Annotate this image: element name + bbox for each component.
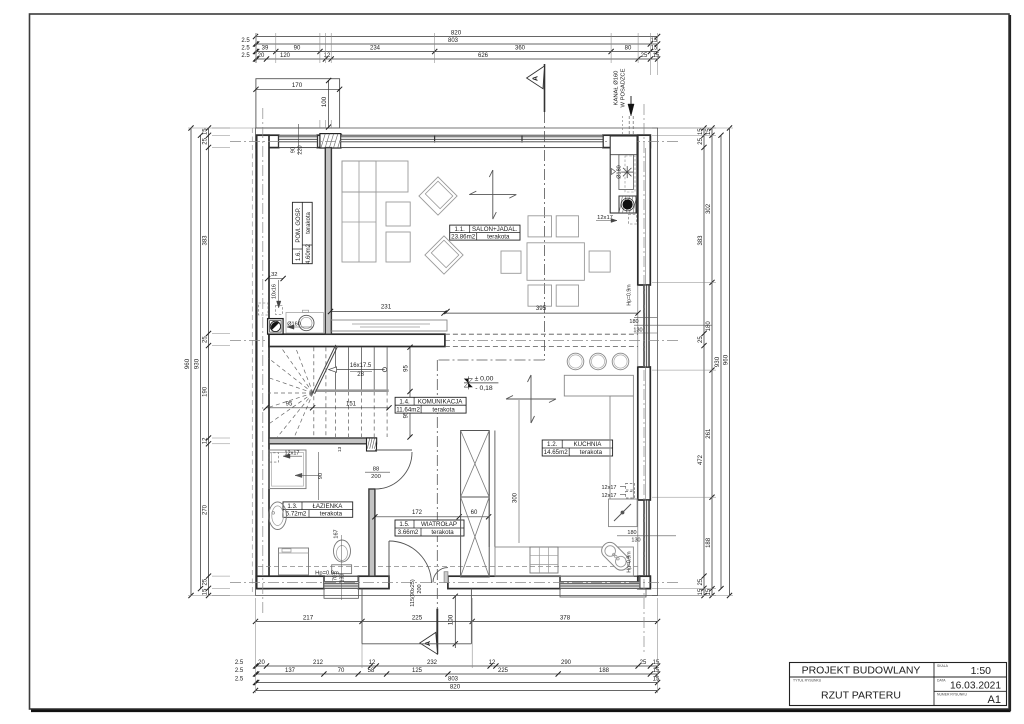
svg-text:1.3.: 1.3. [287,503,298,510]
svg-text:930: 930 [714,356,721,367]
svg-text:383: 383 [203,235,209,246]
svg-text:20: 20 [258,660,265,666]
svg-text:KUCHNIA: KUCHNIA [573,441,602,448]
svg-text:1.4.: 1.4. [399,398,410,405]
svg-text:217: 217 [303,615,314,622]
svg-text:90: 90 [291,147,297,153]
svg-text:180: 180 [629,319,638,325]
svg-text:626: 626 [478,53,489,59]
svg-text:130: 130 [340,574,346,583]
svg-text:302: 302 [706,203,712,214]
svg-text:2.5: 2.5 [235,668,244,674]
svg-text:170: 170 [292,82,303,89]
svg-text:16.03.2021: 16.03.2021 [950,681,1001,692]
svg-text:Hp=0.9m: Hp=0.9m [627,284,633,305]
svg-text:terakota: terakota [431,529,454,536]
svg-text:180: 180 [627,530,636,536]
svg-text:25: 25 [203,578,209,585]
svg-text:137: 137 [285,668,296,674]
svg-text:terakota: terakota [432,406,455,413]
svg-text:25: 25 [698,578,704,585]
svg-text:378: 378 [560,615,571,622]
svg-text:395: 395 [536,305,547,312]
svg-text:120: 120 [280,53,291,59]
svg-text:20: 20 [258,53,265,59]
svg-text:16x17.5: 16x17.5 [350,363,372,369]
svg-text:15: 15 [698,128,704,135]
svg-text:60: 60 [471,510,478,516]
svg-text:200: 200 [371,474,381,480]
svg-text:200: 200 [417,584,423,593]
svg-text:10x16: 10x16 [272,284,278,299]
svg-text:W POSADZCE: W POSADZCE [621,68,627,107]
svg-text:2.5: 2.5 [235,677,244,683]
svg-text:12x17: 12x17 [602,493,617,499]
svg-text:39: 39 [262,46,269,52]
svg-text:1.2.: 1.2. [547,441,558,448]
svg-text:12x17: 12x17 [597,215,613,221]
svg-text:12: 12 [489,660,496,666]
svg-text:290: 290 [561,660,572,666]
svg-text:115(90x25): 115(90x25) [410,579,416,607]
svg-text:terakota: terakota [320,511,343,518]
svg-text:23.86m2: 23.86m2 [451,233,476,240]
svg-text:- 0,18: - 0,18 [475,385,493,392]
svg-text:25: 25 [698,336,704,343]
svg-text:A: A [533,76,540,81]
svg-text:1:50: 1:50 [971,665,992,677]
svg-text:1.6.: 1.6. [296,251,302,261]
svg-text:terakota: terakota [306,212,312,234]
svg-text:SALON+JADAL.: SALON+JADAL. [472,226,518,233]
svg-text:383: 383 [698,235,704,246]
svg-text:167: 167 [334,529,340,538]
svg-text:95: 95 [286,401,293,407]
svg-text:12x17: 12x17 [602,485,617,491]
svg-text:125: 125 [412,668,423,674]
svg-text:960: 960 [184,358,191,369]
svg-text:RZUT PARTERU: RZUT PARTERU [821,690,901,702]
svg-text:NUMER RYSUNKU: NUMER RYSUNKU [937,693,967,697]
svg-text:100: 100 [448,614,455,625]
svg-text:terakota: terakota [487,233,510,240]
svg-text:Ø180: Ø180 [616,165,622,178]
svg-text:360: 360 [515,46,526,52]
svg-text:212: 212 [313,660,324,666]
svg-text:25: 25 [698,137,704,144]
svg-text:100: 100 [321,96,328,107]
svg-text:15: 15 [698,588,704,595]
svg-text:13: 13 [337,447,343,453]
svg-text:15: 15 [651,46,658,52]
svg-text:188: 188 [706,537,712,548]
svg-text:232: 232 [427,660,438,666]
svg-text:ŁAZIENKA: ŁAZIENKA [312,503,343,510]
svg-text:A1: A1 [988,694,1001,706]
svg-text:180: 180 [706,321,712,332]
svg-text:15: 15 [653,53,660,59]
svg-text:12: 12 [324,53,331,59]
svg-text:15: 15 [203,588,209,595]
svg-text:130: 130 [633,328,642,334]
svg-text:WIATROŁAP: WIATROŁAP [421,521,457,528]
svg-text:231: 231 [381,304,392,311]
svg-text:15: 15 [653,677,660,683]
svg-text:90: 90 [294,46,301,52]
svg-text:15: 15 [651,38,658,44]
svg-text:151: 151 [346,401,357,407]
svg-text:15: 15 [653,660,660,666]
svg-text:PROJEKT BUDOWLANY: PROJEKT BUDOWLANY [802,665,921,677]
svg-text:80: 80 [625,46,632,52]
svg-text:12: 12 [369,660,376,666]
svg-text:25: 25 [203,336,209,343]
svg-text:2.5: 2.5 [241,38,250,44]
svg-text:930: 930 [194,358,201,369]
svg-text:12: 12 [203,437,209,444]
svg-text:472: 472 [698,454,704,465]
svg-text:15: 15 [706,588,712,595]
svg-text:TYTUŁ RYSUNKU: TYTUŁ RYSUNKU [793,679,822,683]
svg-text:234: 234 [370,46,381,52]
svg-text:25: 25 [641,53,648,59]
svg-text:KOMUNIKACJA: KOMUNIKACJA [418,398,464,405]
svg-text:14.65m2: 14.65m2 [544,449,569,456]
svg-text:820: 820 [451,30,462,37]
svg-text:2.5: 2.5 [235,660,244,666]
svg-text:25: 25 [640,660,647,666]
svg-text:25: 25 [203,137,209,144]
svg-text:172: 172 [412,510,423,516]
svg-text:15: 15 [653,668,660,674]
svg-text:2.5: 2.5 [241,53,250,59]
svg-text:Hp=0.9m: Hp=0.9m [627,551,633,572]
svg-text:820: 820 [450,684,461,691]
svg-text:SKALA: SKALA [937,664,949,668]
svg-text:± 0,00: ± 0,00 [475,376,494,383]
svg-text:190: 190 [203,386,209,397]
svg-text:32: 32 [271,272,277,278]
svg-text:15: 15 [706,128,712,135]
svg-text:58: 58 [368,668,375,674]
svg-text:5.72m2: 5.72m2 [286,511,307,518]
svg-text:70: 70 [338,668,345,674]
svg-text:225: 225 [412,615,423,622]
svg-text:1.1.: 1.1. [455,226,466,233]
svg-text:90: 90 [318,473,324,479]
svg-text:15: 15 [203,128,209,135]
svg-text:1.5.: 1.5. [399,521,410,528]
svg-text:11.64m2: 11.64m2 [396,406,420,413]
svg-text:POM. GOSP.: POM. GOSP. [296,207,302,243]
svg-text:DATA: DATA [937,679,946,683]
svg-text:terakota: terakota [580,449,603,456]
svg-text:188: 188 [599,668,610,674]
svg-text:270: 270 [203,504,209,515]
svg-text:28: 28 [357,372,364,378]
svg-text:803: 803 [448,677,459,683]
svg-text:88: 88 [373,467,379,473]
svg-text:Hp=0.9m: Hp=0.9m [315,570,339,576]
svg-text:803: 803 [448,38,459,44]
svg-text:4.60m2: 4.60m2 [306,243,312,264]
svg-text:261: 261 [706,428,712,439]
svg-text:960: 960 [723,354,730,365]
svg-text:2.5: 2.5 [241,46,250,52]
svg-text:3.66m2: 3.66m2 [398,529,419,536]
svg-text:KANAŁ Ø160: KANAŁ Ø160 [614,71,620,106]
svg-text:300: 300 [513,492,519,503]
svg-text:225: 225 [498,668,509,674]
svg-text:95: 95 [403,365,409,372]
svg-text:130: 130 [631,537,640,543]
